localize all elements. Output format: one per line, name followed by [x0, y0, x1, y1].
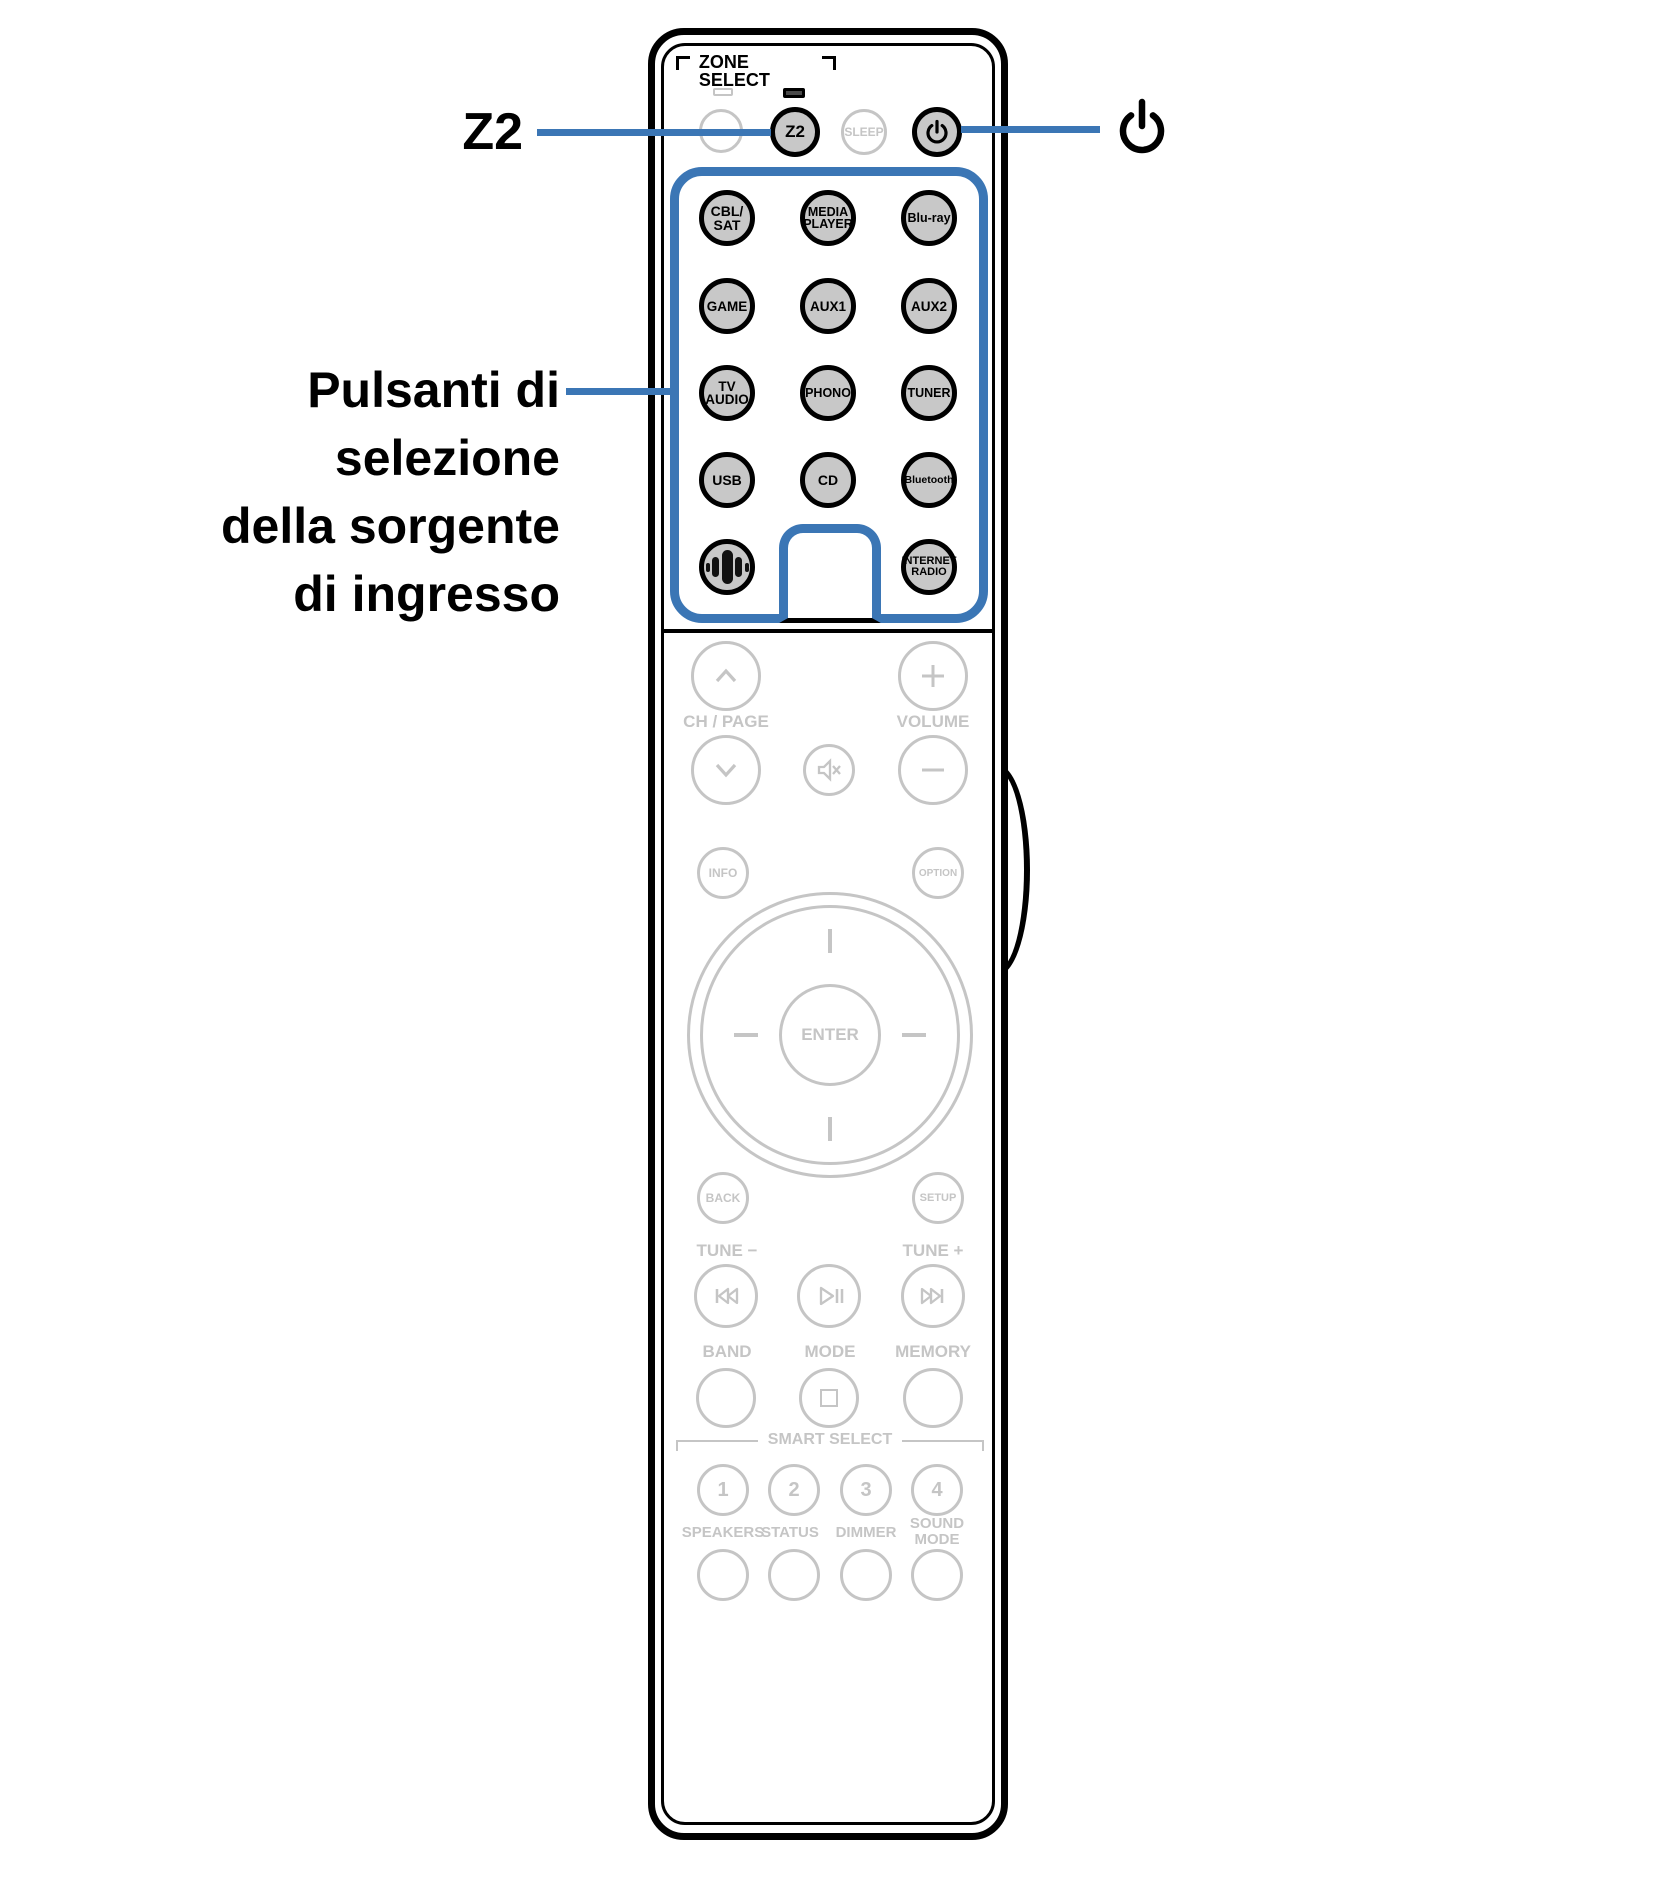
channel-up-button[interactable] [691, 641, 761, 711]
source-button-media-player[interactable]: MEDIA PLAYER [800, 190, 856, 246]
status-button[interactable] [768, 1549, 820, 1601]
play-pause-button[interactable] [797, 1264, 861, 1328]
callout-power-line [961, 126, 1100, 133]
option-button[interactable]: OPTION [912, 847, 964, 899]
sound-wave-icon [706, 550, 749, 584]
power-icon [1110, 95, 1174, 159]
callout-source-line [566, 388, 676, 395]
nav-right-tick-icon[interactable] [902, 1033, 926, 1037]
skip-back-button[interactable] [694, 1264, 758, 1328]
plus-icon [913, 656, 953, 696]
volume-down-button[interactable] [898, 735, 968, 805]
source-button-bluetooth[interactable]: Bluetooth [901, 452, 957, 508]
smart-select-2-button[interactable]: 2 [768, 1464, 820, 1516]
dimmer-button[interactable] [840, 1549, 892, 1601]
source-button-tv-audio[interactable]: TV AUDIO [699, 365, 755, 421]
mute-icon [812, 753, 846, 787]
chevron-down-icon [706, 750, 746, 790]
sound-wave-button[interactable] [699, 539, 755, 595]
sound-mode-label: SOUND MODE [862, 1516, 1012, 1548]
callout-z2-label: Z2 [323, 102, 523, 162]
source-button-aux1[interactable]: AUX1 [800, 278, 856, 334]
play-pause-icon [810, 1277, 848, 1315]
smart-select-bracket-right [902, 1440, 984, 1451]
sound-mode-button[interactable] [911, 1549, 963, 1601]
smart-select-bracket-left [676, 1440, 758, 1451]
skip-forward-button[interactable] [901, 1264, 965, 1328]
source-button-tuner[interactable]: TUNER [901, 365, 957, 421]
nav-down-tick-icon[interactable] [828, 1117, 832, 1141]
source-button-usb[interactable]: USB [699, 452, 755, 508]
enter-button[interactable]: ENTER [779, 984, 881, 1086]
skip-forward-icon [914, 1277, 952, 1315]
power-button[interactable] [912, 107, 962, 157]
zone-select-bracket-left [676, 56, 690, 70]
source-button-cbl-sat[interactable]: CBL/ SAT [699, 190, 755, 246]
smart-select-label: SMART SELECT [768, 1432, 892, 1448]
source-button-game[interactable]: GAME [699, 278, 755, 334]
ch-page-label: CH / PAGE [646, 712, 806, 732]
callout-source-label: Pulsanti di selezione della sorgente di … [100, 356, 560, 628]
nav-up-tick-icon[interactable] [828, 929, 832, 953]
smart-select-3-button[interactable]: 3 [840, 1464, 892, 1516]
source-button-blu-ray[interactable]: Blu-ray [901, 190, 957, 246]
memory-label: MEMORY [853, 1342, 1013, 1362]
zone-select-label: ZONE SELECT [699, 53, 813, 89]
zone-z2-led-icon [783, 88, 805, 98]
band-button[interactable] [696, 1368, 756, 1428]
power-button-icon [920, 115, 954, 149]
mute-button[interactable] [803, 744, 855, 796]
source-box-notch [779, 524, 881, 623]
minus-icon [913, 750, 953, 790]
skip-back-icon [707, 1277, 745, 1315]
back-button[interactable]: BACK [697, 1172, 749, 1224]
remote-diagram-canvas: Z2 Pulsanti di selezione della sorgente … [0, 0, 1665, 1878]
info-button[interactable]: INFO [697, 847, 749, 899]
tune-plus-label: TUNE + [853, 1241, 1013, 1261]
volume-label: VOLUME [853, 712, 1013, 732]
smart-select-4-button[interactable]: 4 [911, 1464, 963, 1516]
source-button-aux2[interactable]: AUX2 [901, 278, 957, 334]
tune-minus-label: TUNE − [647, 1241, 807, 1261]
smart-select-1-button[interactable]: 1 [697, 1464, 749, 1516]
zone-main-led-icon [713, 88, 733, 96]
source-button-phono[interactable]: PHONO [800, 365, 856, 421]
volume-up-button[interactable] [898, 641, 968, 711]
nav-left-tick-icon[interactable] [734, 1033, 758, 1037]
callout-z2-line [537, 129, 771, 136]
source-button-cd[interactable]: CD [800, 452, 856, 508]
source-button-internet-radio[interactable]: INTERNET RADIO [901, 539, 957, 595]
mode-button[interactable] [799, 1368, 859, 1428]
stop-icon [820, 1389, 838, 1407]
chevron-up-icon [706, 656, 746, 696]
setup-button[interactable]: SETUP [912, 1172, 964, 1224]
zone-select-header: ZONE SELECT [676, 56, 836, 78]
zone-z2-button[interactable]: Z2 [770, 107, 820, 157]
remote-seam-line [663, 629, 993, 633]
speakers-button[interactable] [697, 1549, 749, 1601]
channel-down-button[interactable] [691, 735, 761, 805]
zone-select-bracket-right [822, 56, 836, 70]
smart-select-header: SMART SELECT [676, 1440, 984, 1451]
sleep-button[interactable]: SLEEP [841, 109, 887, 155]
memory-button[interactable] [903, 1368, 963, 1428]
